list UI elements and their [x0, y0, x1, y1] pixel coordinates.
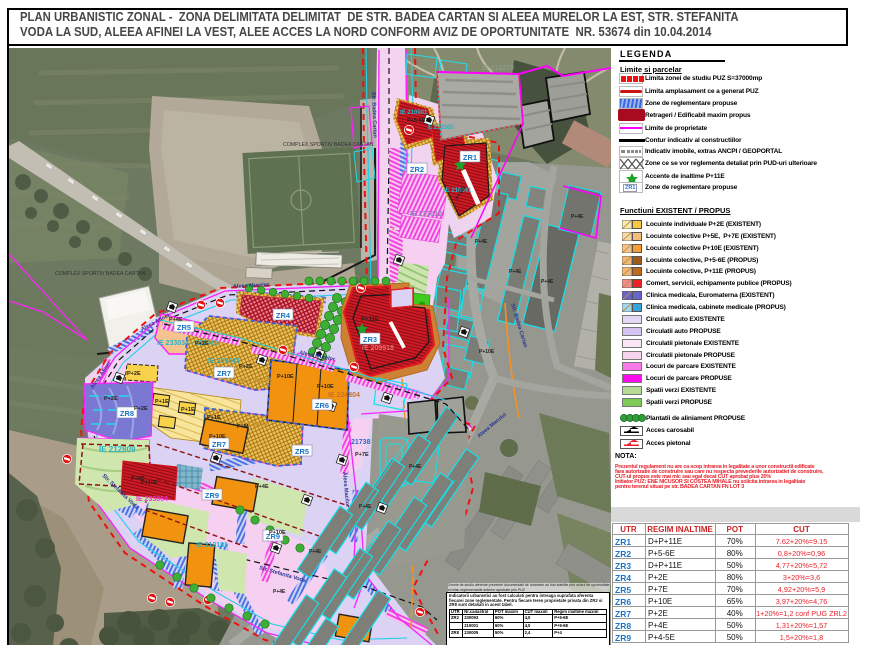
svg-text:IE 220496: IE 220496 — [240, 378, 272, 385]
svg-text:ZR6: ZR6 — [315, 401, 329, 410]
svg-text:ZR8: ZR8 — [120, 409, 134, 418]
svg-text:P+5-6E: P+5-6E — [407, 118, 426, 124]
svg-text:P+M: P+M — [237, 424, 249, 430]
svg-text:COMPLEX SPORTIV BADEA CARTAN: COMPLEX SPORTIV BADEA CARTAN — [55, 271, 146, 277]
svg-text:P+7E: P+7E — [355, 452, 369, 458]
svg-text:ZR4: ZR4 — [276, 311, 291, 320]
svg-text:P+10E: P+10E — [141, 480, 158, 486]
svg-text:IE 209043: IE 209043 — [208, 358, 240, 365]
svg-text:IE 212131: IE 212131 — [196, 542, 228, 549]
svg-text:P+4E: P+4E — [309, 549, 322, 555]
svg-text:P+4E: P+4E — [571, 214, 584, 220]
svg-text:P+4E: P+4E — [273, 589, 286, 595]
svg-text:IE 224804: IE 224804 — [328, 392, 360, 399]
svg-text:P+2E: P+2E — [127, 371, 141, 377]
svg-text:ZR9: ZR9 — [205, 491, 219, 500]
svg-text:ZR1: ZR1 — [463, 153, 477, 162]
svg-text:P+2E: P+2E — [134, 406, 148, 412]
svg-text:IE 233012: IE 233012 — [410, 211, 442, 218]
svg-text:P+10E: P+10E — [277, 374, 294, 380]
svg-text:ZR7: ZR7 — [212, 440, 226, 449]
svg-text:P+4E: P+4E — [409, 464, 422, 470]
svg-text:COMPLEX SPORTIV BADEA CARTAN: COMPLEX SPORTIV BADEA CARTAN — [283, 142, 374, 148]
svg-text:IE 210001: IE 210001 — [400, 110, 428, 116]
svg-text:P+11E: P+11E — [361, 317, 379, 323]
svg-text:P+10E: P+10E — [269, 530, 286, 536]
svg-text:IE 233064: IE 233064 — [136, 496, 168, 503]
svg-text:ZR5: ZR5 — [295, 447, 309, 456]
svg-text:ZR2: ZR2 — [410, 165, 424, 174]
svg-text:P+4E: P+4E — [475, 239, 488, 245]
svg-text:P+4E: P+4E — [541, 279, 554, 285]
svg-text:E 230365: E 230365 — [428, 125, 454, 131]
svg-text:P+10E: P+10E — [317, 384, 334, 390]
svg-text:P+10E: P+10E — [209, 434, 226, 440]
svg-text:IE 209918: IE 209918 — [362, 345, 394, 352]
svg-text:P+4E: P+4E — [359, 504, 372, 510]
svg-text:P+1E: P+1E — [181, 407, 195, 413]
svg-text:IE 233034 - 217415: IE 233034 - 217415 — [157, 340, 219, 347]
svg-text:ZR5: ZR5 — [177, 323, 191, 332]
svg-text:P+4E: P+4E — [255, 484, 269, 490]
svg-text:P+4E: P+4E — [509, 269, 522, 275]
svg-text:P+2E: P+2E — [195, 341, 209, 347]
svg-text:ZR3: ZR3 — [363, 335, 377, 344]
svg-text:P+2E: P+2E — [239, 364, 253, 370]
svg-text:IE 212809: IE 212809 — [99, 445, 136, 454]
svg-text:21738: 21738 — [351, 439, 371, 446]
svg-text:P+4E: P+4E — [169, 317, 183, 323]
svg-text:P+10E: P+10E — [479, 349, 495, 355]
svg-text:P+1E: P+1E — [155, 399, 169, 405]
svg-text:P+1E: P+1E — [207, 415, 221, 421]
svg-text:IE 212379: IE 212379 — [482, 65, 514, 72]
svg-text:P+2E: P+2E — [104, 396, 118, 402]
svg-text:ZR7: ZR7 — [217, 369, 231, 378]
